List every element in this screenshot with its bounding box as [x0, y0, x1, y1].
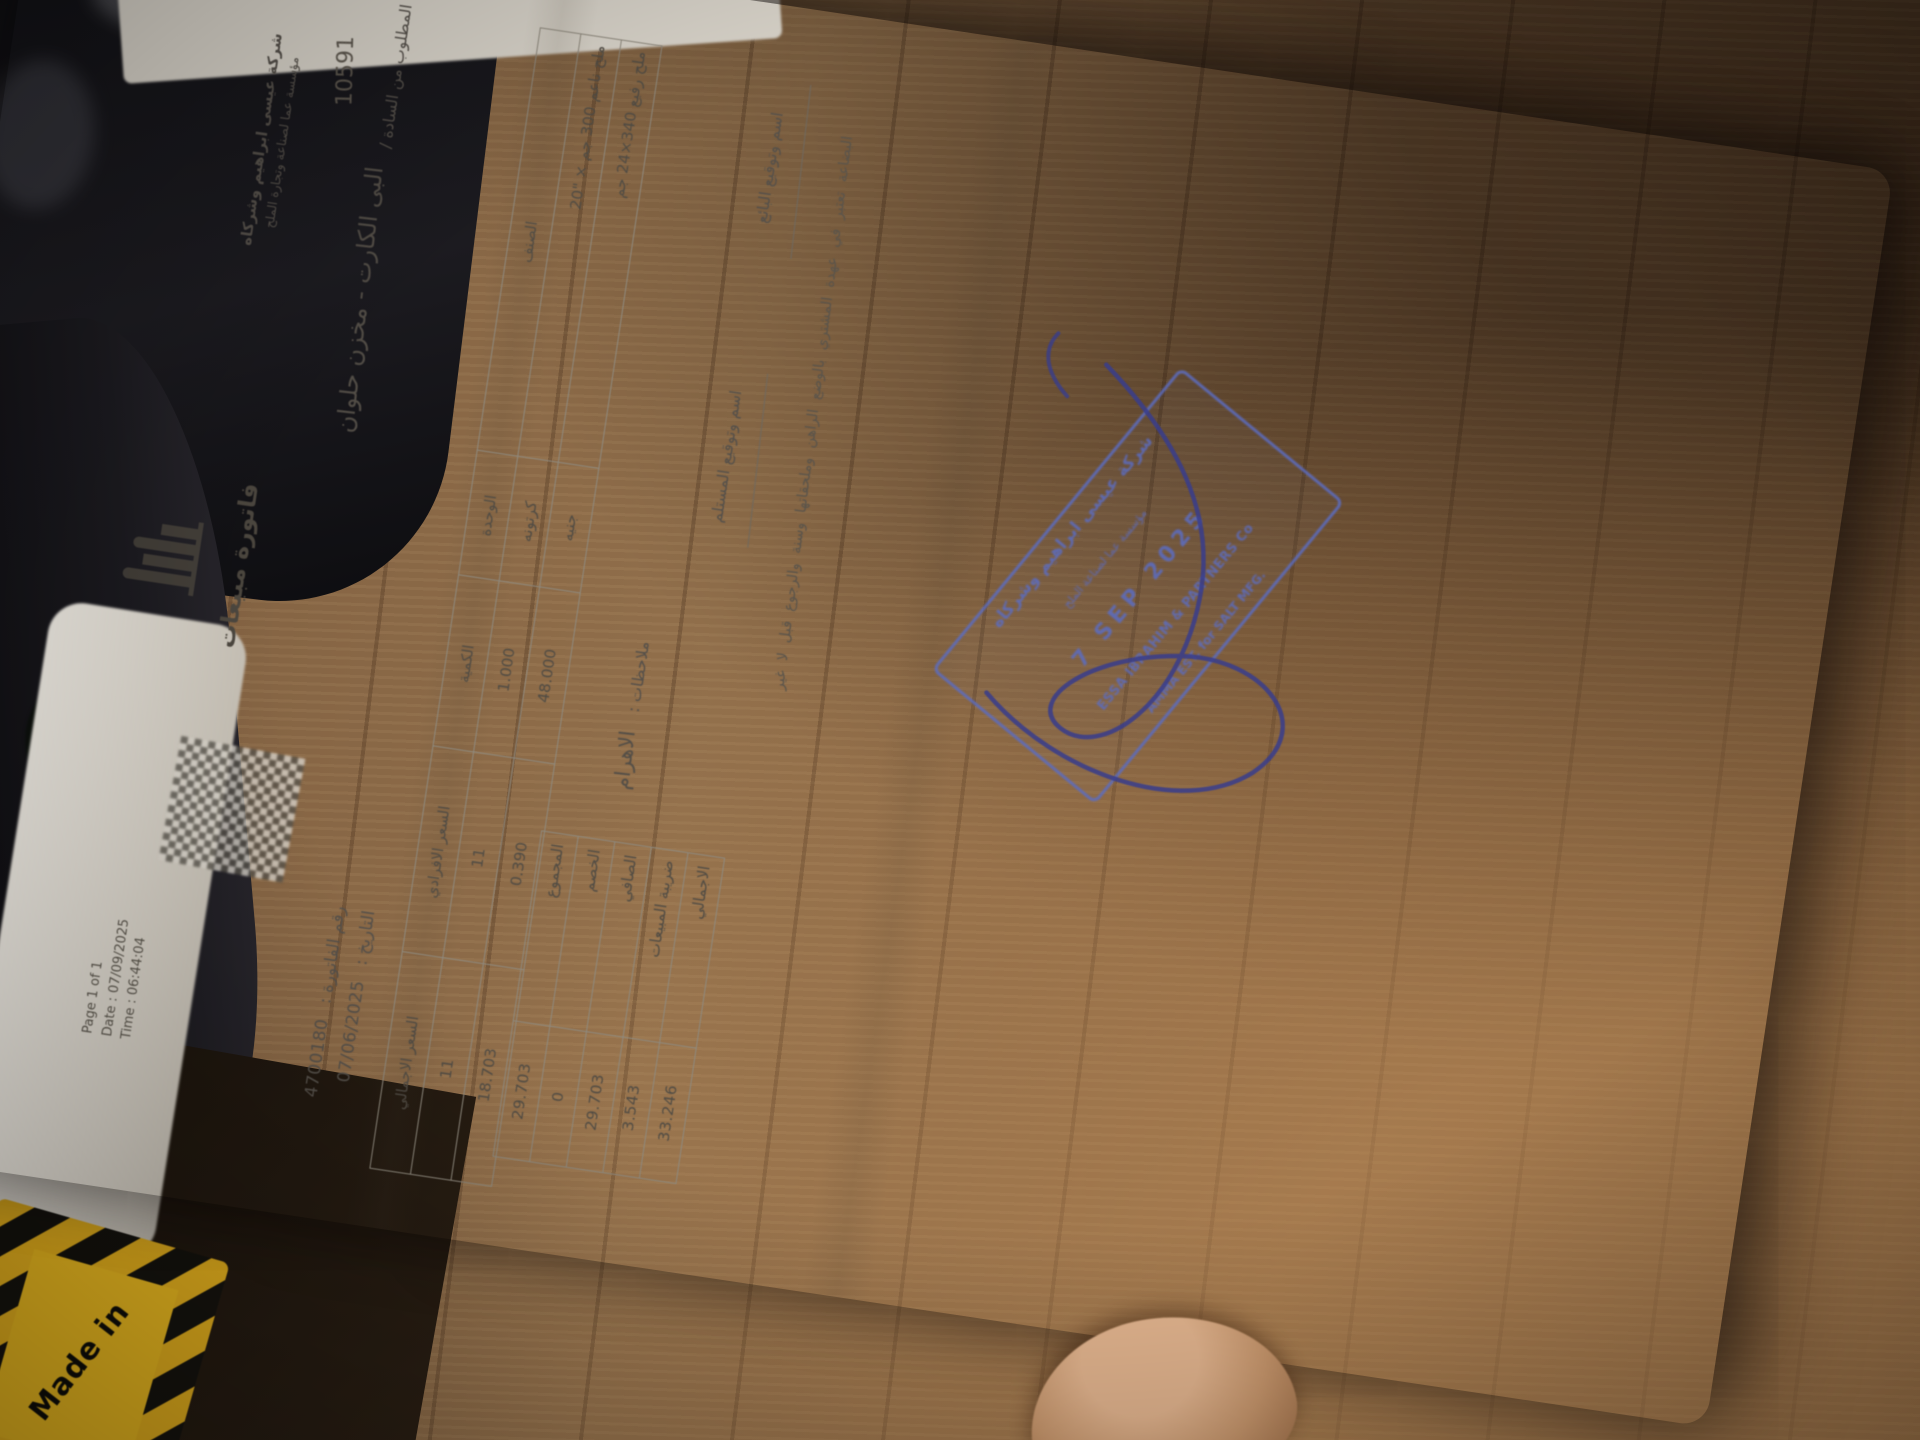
pen-signature	[915, 260, 1377, 890]
notes-handwritten: الاهرام	[609, 729, 640, 791]
tape-text: Made in	[23, 1295, 137, 1428]
notes-label: ملاحظات :	[624, 640, 653, 714]
invoice-date-label: التاريخ :	[351, 909, 379, 967]
handwritten-serial: 10591	[332, 36, 359, 107]
receiver-signature-label: اسم وتوقيع المستلم	[698, 331, 754, 581]
seller-signature-label: اسم وتوقيع البائع	[741, 43, 797, 293]
company-logo-icon	[105, 510, 204, 596]
invoice-document: شركة عيسى ابراهيم وشركاه مؤسسة عما لصناع…	[0, 0, 1894, 1427]
qr-code	[158, 736, 305, 883]
customer-label: المطلوب من السادة /	[375, 3, 415, 150]
print-meta-block: Page 1 of 1 Date : 07/09/2025 Time : 06:…	[78, 915, 153, 1041]
signature-line	[790, 85, 811, 259]
invoice-content: شركة عيسى ابراهيم وشركاه مؤسسة عما لصناع…	[0, 0, 1894, 1427]
photo-scene: Made in شركة عيسى ابراهيم وشركاه مؤسسة ع…	[0, 0, 1920, 1440]
invoice-fields: رقم الفاتورة : 4700180 التاريخ : 07/06/2…	[297, 904, 384, 1104]
receiver-signature-block: اسم وتوقيع المستلم	[698, 331, 776, 584]
notes-line: ملاحظات : الاهرام	[608, 639, 654, 791]
customer-handwritten: البى الكارت - مخزن حلوان	[331, 165, 389, 434]
signature-line	[747, 374, 768, 548]
seller-signature-block: اسم وتوقيع البائع	[741, 43, 819, 296]
tape-label: Made in	[0, 1249, 179, 1440]
